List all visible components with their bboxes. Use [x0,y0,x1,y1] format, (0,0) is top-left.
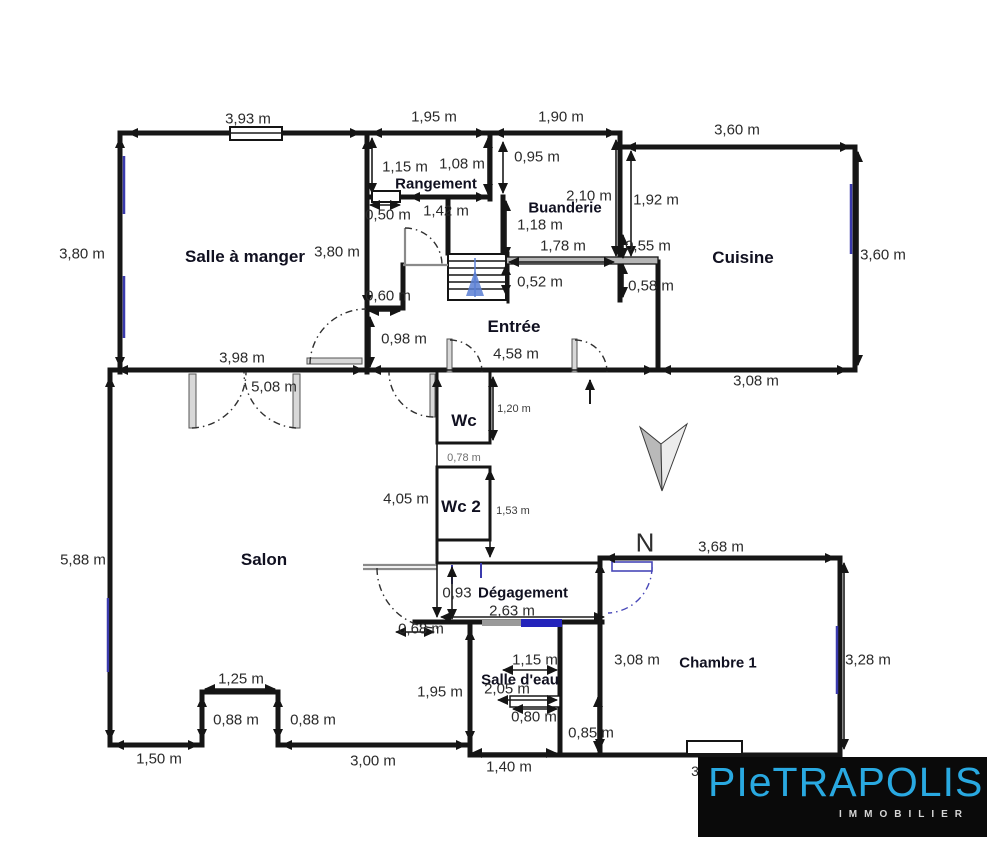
dim-label: 5,88 m [60,552,106,569]
door-leaf-chambre1 [612,562,652,571]
dim-label: 0,52 m [517,274,563,291]
degagement-blue-bar [521,619,562,627]
floor-plan-drawing [0,0,1000,849]
room-label-wc2: Wc 2 [441,497,481,517]
logo-tagline-text: IMMOBILIER [839,809,969,820]
dim-label: 3,60 m [714,122,760,139]
dim-label: 1,53 m [496,505,530,517]
dim-label: 4,05 m [383,491,429,508]
dim-label: 0,98 m [381,331,427,348]
dim-label: 0,50 m [365,207,411,224]
buanderie-double-wall [503,257,658,264]
door-arc-double-left [192,372,246,428]
compass-icon [640,424,687,491]
dim-label: 2,63 m [489,603,535,620]
dim-label: 3,00 m [350,753,396,770]
dim-label: 3,60 m [860,247,906,264]
door-arc-degagement [377,568,437,628]
dim-label: 1,20 m [497,403,531,415]
room-label-degagement: Dégagement [478,585,568,602]
dim-label: 5,08 m [251,379,297,396]
degagement-gray-bar [482,620,521,626]
dim-label: 0,95 m [514,149,560,166]
dim-label: 1,15 m [382,159,428,176]
room-label-cuisine: Cuisine [712,248,773,268]
dim-label: 1,90 m [538,109,584,126]
dim-label: 1,25 m [218,671,264,688]
dim-label: 3,08 m [614,652,660,669]
dim-label: 1,40 m [486,759,532,776]
dim-label: 1,92 m [633,192,679,209]
room-label-salle-a-manger: Salle à manger [185,247,305,267]
dim-label: 3,80 m [314,244,360,261]
floorplan-page: Salle à manger Rangement Buanderie Cuisi… [0,0,1000,849]
dim-label: 3,98 m [219,350,265,367]
dim-label: 0,68 m [398,621,444,638]
room-label-wc: Wc [451,411,477,431]
dim-label: 1,50 m [136,751,182,768]
dim-label: 4,58 m [493,346,539,363]
dim-label: 0,88 m [290,712,336,729]
room-label-salon: Salon [241,550,287,570]
dim-label: 1,95 m [417,684,463,701]
room-label-rangement: Rangement [395,176,477,193]
dim-label: 2,10 m [566,188,612,205]
dim-label: 1,95 m [411,109,457,126]
dim-label: 0,85 m [568,725,614,742]
dim-label: 0,55 m [625,238,671,255]
dim-label: 3,80 m [59,246,105,263]
room-label-chambre1: Chambre 1 [679,655,757,672]
stairs [448,254,506,300]
door-arc-wc-corridor [389,372,433,417]
dim-label: 1,42 m [423,203,469,220]
door-arc-salle-a-manger [310,309,366,364]
room-label-entree: Entrée [488,317,541,337]
logo-brand-text: PIeTRAPOLIS [708,759,980,806]
dim-label: 1,15 m [512,652,558,669]
pietrapolis-logo: PIeTRAPOLIS IMMOBILIER [698,757,987,837]
door-arc-entree-2 [575,340,607,372]
dim-label: 3,28 m [845,652,891,669]
door-arc-rangement [405,228,442,265]
door-arc-chambre1 [608,567,652,613]
dim-label: 3,68 m [698,539,744,556]
door-arc-entree-1 [450,340,482,372]
dim-label: 0,58 m [628,278,674,295]
dim-label: 1,18 m [517,217,563,234]
dim-label: 2,05 m [484,681,530,698]
dim-label: 1,08 m [439,156,485,173]
dim-label: 0,78 m [447,452,481,464]
dim-label: 0,93 [442,585,471,602]
north-label: N [636,528,655,559]
windows [108,156,851,694]
dim-label: 0,80 m [511,709,557,726]
shower-fixture-rect [510,696,560,707]
dim-label: 3,08 m [733,373,779,390]
dim-label: 3,93 m [225,111,271,128]
dim-label: 0,60 m [365,288,411,305]
dim-label: 1,78 m [540,238,586,255]
dim-label: 0,88 m [213,712,259,729]
